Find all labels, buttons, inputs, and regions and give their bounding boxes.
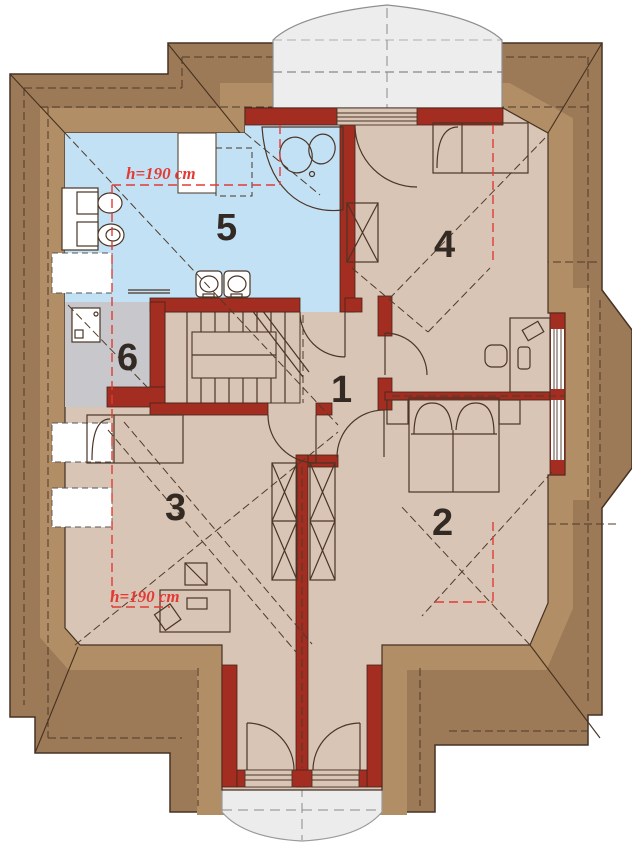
height-label-top: h=190 cm — [126, 164, 196, 183]
room-1-number: 1 — [331, 369, 352, 411]
room-5-number: 5 — [216, 207, 237, 249]
height-label-bottom: h=190 cm — [110, 587, 180, 606]
room-3-number: 3 — [165, 487, 186, 529]
staircase — [165, 302, 309, 403]
floor-plan-drawing: h=190 cm h=190 cm 1 2 3 4 5 6 — [0, 0, 632, 844]
dormer-roof — [273, 5, 502, 110]
washing-machine-icon — [72, 308, 100, 342]
floor-plan-page: h=190 cm h=190 cm 1 2 3 4 5 6 — [0, 0, 632, 844]
room-6-number: 6 — [117, 337, 138, 379]
room-4-number: 4 — [434, 224, 455, 266]
room-2-number: 2 — [432, 502, 453, 544]
